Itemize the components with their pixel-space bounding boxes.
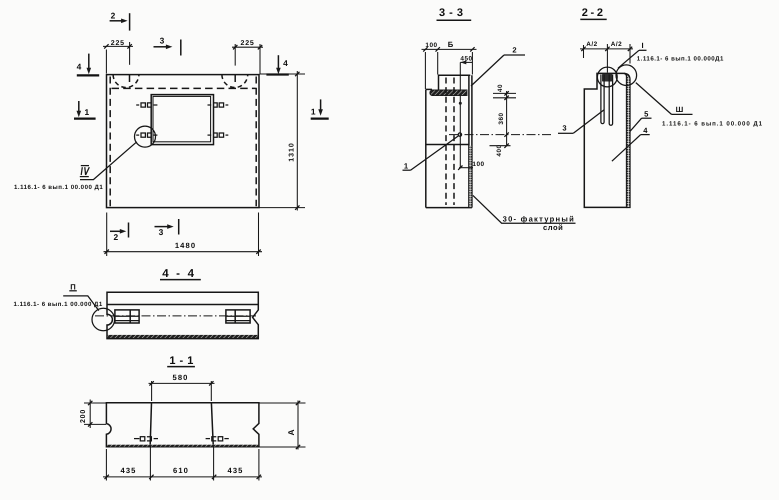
svg-text:А: А — [286, 429, 296, 435]
svg-text:Б: Б — [448, 40, 454, 49]
svg-text:4 - 4: 4 - 4 — [162, 268, 196, 280]
svg-text:4: 4 — [77, 62, 82, 72]
svg-text:2 - 2: 2 - 2 — [582, 7, 603, 19]
svg-text:1.116.1- 6 вып.1 00.000 Д1: 1.116.1- 6 вып.1 00.000 Д1 — [14, 301, 103, 308]
svg-text:2: 2 — [111, 11, 116, 21]
svg-text:1.116.1- 6 вып.1 00.000 Д1: 1.116.1- 6 вып.1 00.000 Д1 — [662, 121, 763, 128]
svg-text:А/2: А/2 — [611, 41, 623, 48]
svg-text:слой: слой — [543, 223, 563, 232]
svg-text:580: 580 — [173, 373, 189, 382]
svg-text:4: 4 — [283, 58, 288, 68]
svg-text:100: 100 — [472, 161, 484, 168]
svg-text:360: 360 — [498, 112, 505, 124]
svg-text:435: 435 — [228, 466, 244, 475]
svg-text:200: 200 — [80, 409, 87, 423]
svg-text:2: 2 — [512, 46, 516, 55]
svg-text:3: 3 — [159, 227, 164, 237]
svg-text:225: 225 — [241, 40, 255, 47]
svg-text:1.116.1- 6 вып.1 00.000 Д1: 1.116.1- 6 вып.1 00.000 Д1 — [14, 184, 103, 191]
svg-text:1480: 1480 — [175, 241, 196, 250]
svg-text:3 - 3: 3 - 3 — [439, 7, 464, 19]
svg-text:1.116.1- 6 вып.1 00.000Д1: 1.116.1- 6 вып.1 00.000Д1 — [637, 56, 724, 63]
svg-text:1 - 1: 1 - 1 — [169, 355, 194, 367]
svg-text:2: 2 — [113, 232, 118, 242]
svg-text:1: 1 — [311, 106, 316, 116]
svg-text:610: 610 — [173, 466, 189, 475]
svg-text:100: 100 — [425, 42, 437, 49]
svg-text:3: 3 — [160, 36, 165, 46]
svg-text:40: 40 — [497, 84, 504, 92]
svg-text:1: 1 — [84, 107, 89, 117]
svg-text:30- фактурный: 30- фактурный — [503, 214, 575, 223]
svg-text:Ш: Ш — [676, 105, 684, 114]
svg-text:I: I — [641, 41, 643, 50]
svg-text:435: 435 — [121, 466, 137, 475]
svg-text:400: 400 — [496, 144, 503, 156]
svg-text:1310: 1310 — [289, 142, 296, 162]
svg-text:225: 225 — [111, 40, 125, 47]
svg-text:3: 3 — [562, 123, 566, 132]
svg-text:450: 450 — [460, 55, 472, 62]
svg-text:А/2: А/2 — [586, 41, 598, 48]
svg-text:П: П — [70, 282, 75, 291]
